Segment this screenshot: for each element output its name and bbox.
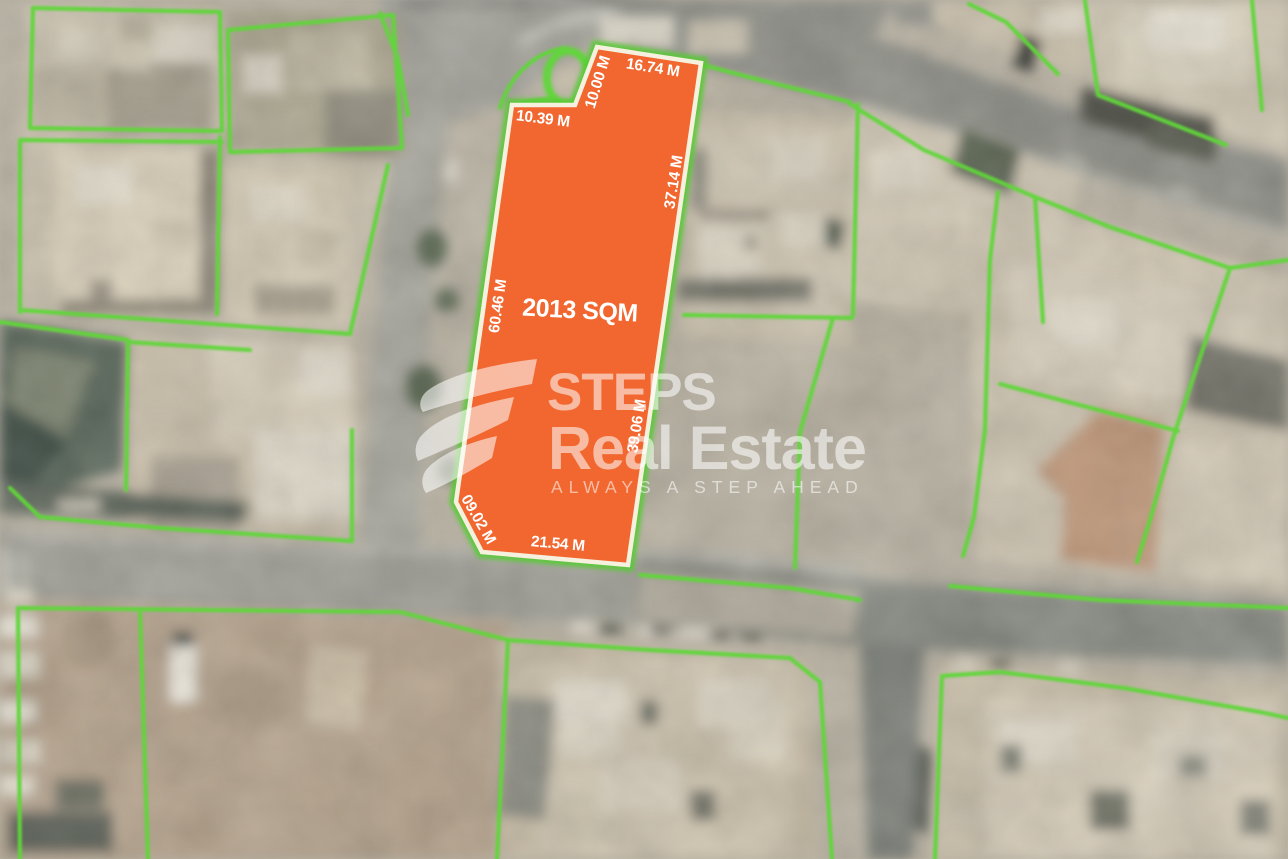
- svg-text:ALWAYS A STEP AHEAD: ALWAYS A STEP AHEAD: [551, 477, 864, 497]
- svg-text:Real Estate: Real Estate: [548, 414, 866, 482]
